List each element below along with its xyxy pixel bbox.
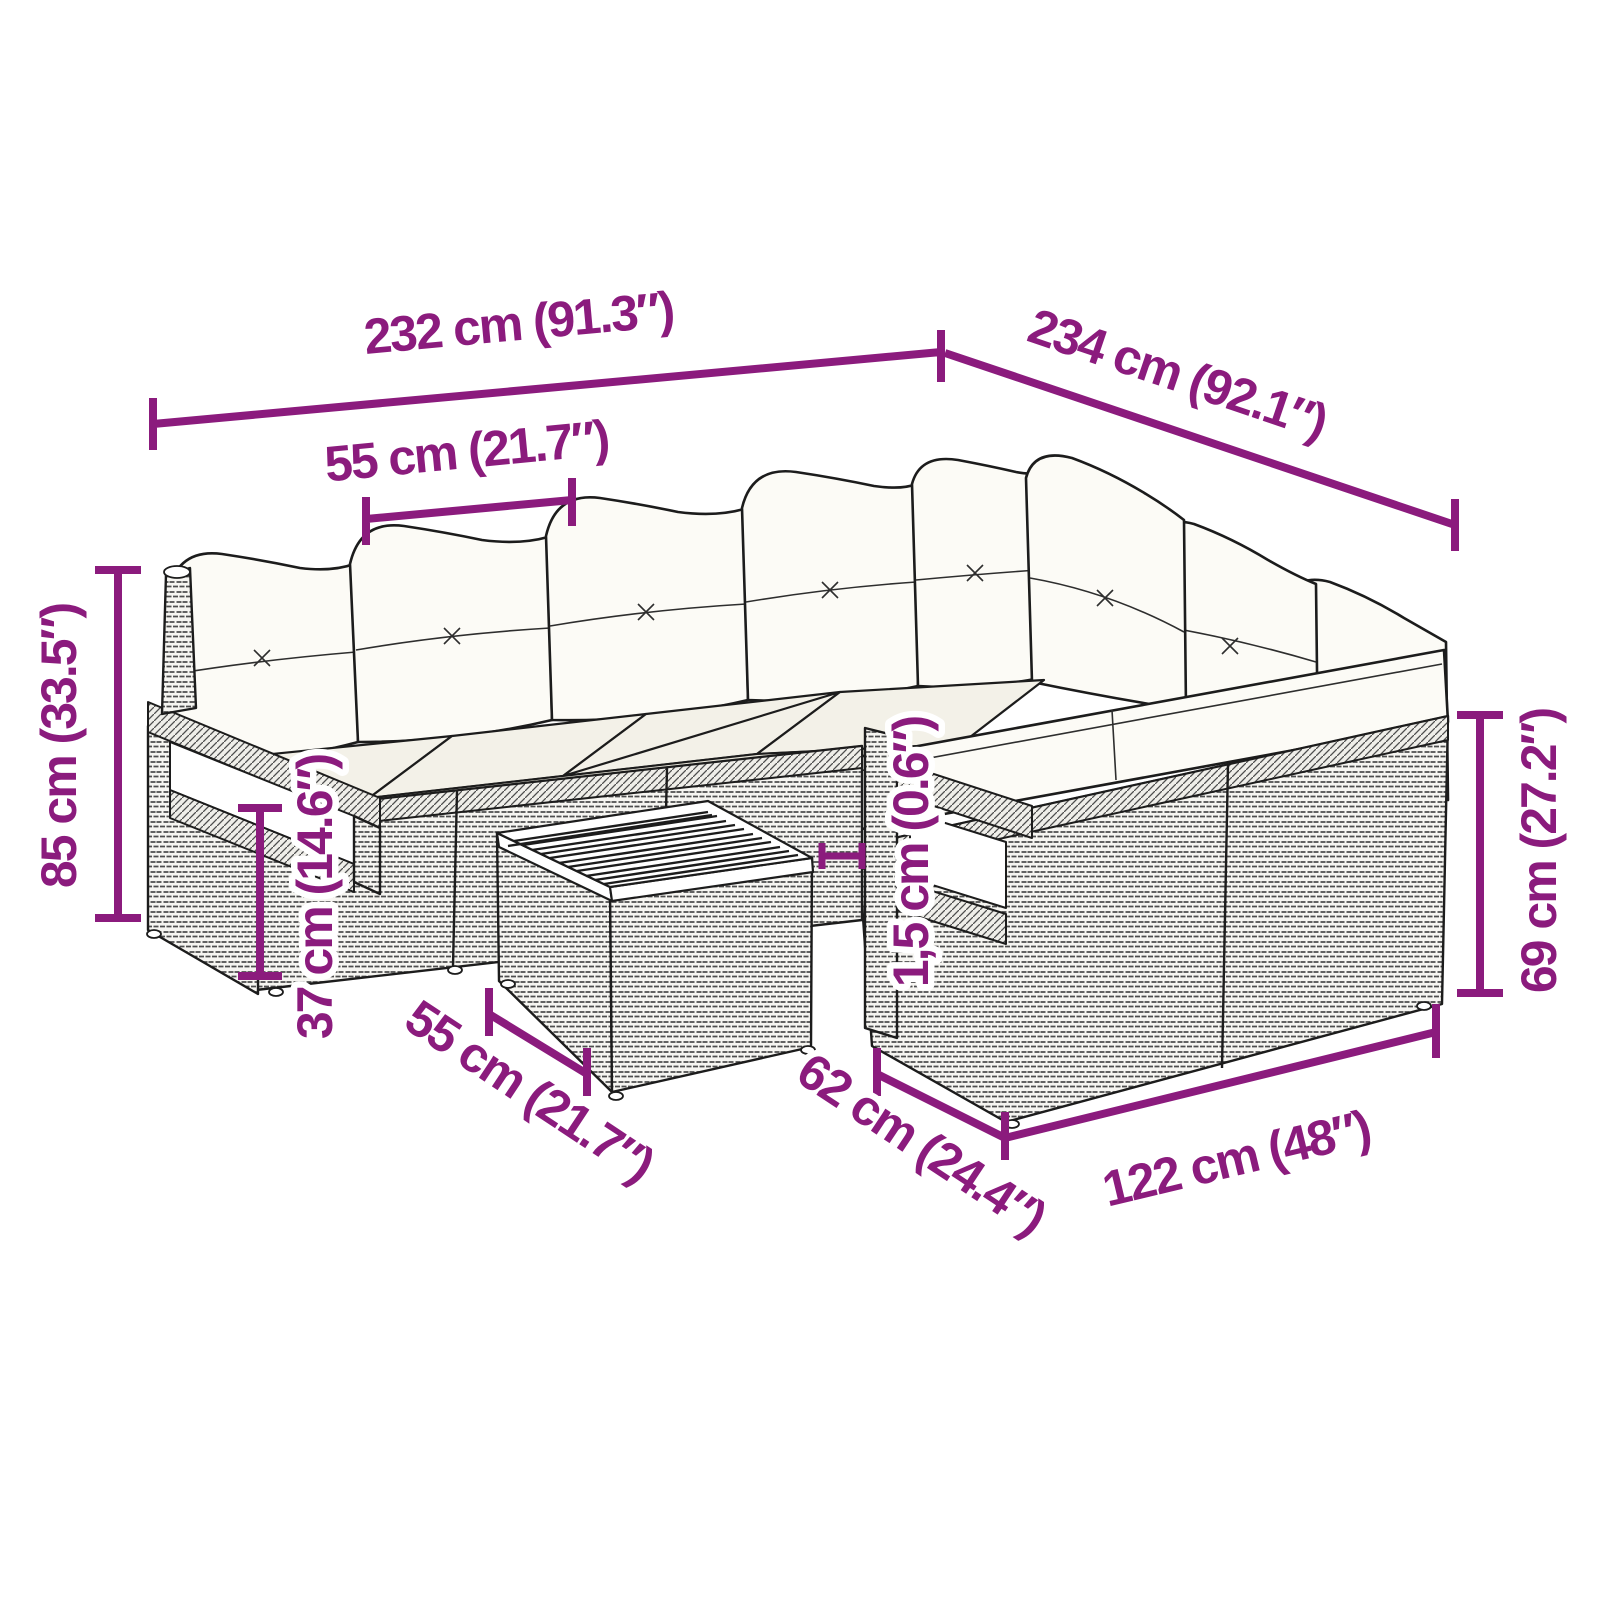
dimension-label: 85 cm (33.5″) [31, 604, 87, 889]
foot [269, 988, 283, 996]
dimension-diagram-page: 232 cm (91.3″) 234 cm (92.1″) 55 cm (21.… [0, 0, 1600, 1600]
armrest-post-cap [164, 566, 190, 578]
foot [501, 980, 515, 988]
back-cushion [350, 525, 552, 742]
foot [448, 966, 462, 974]
back-cushion [742, 471, 918, 700]
left-armrest-front-post [354, 816, 380, 894]
foot [1417, 1002, 1431, 1010]
foot [609, 1092, 623, 1100]
left-armrest-back-post [162, 568, 196, 714]
dimension-label: 37 cm (14.6″) [287, 755, 343, 1040]
back-cushion [546, 497, 748, 720]
dimension-label: 69 cm (27.2″) [1511, 709, 1567, 994]
dimension-diagram: 232 cm (91.3″) 234 cm (92.1″) 55 cm (21.… [0, 0, 1600, 1600]
dimension-label: 1,5 cm (0.6″) [883, 717, 939, 988]
foot [147, 930, 161, 938]
